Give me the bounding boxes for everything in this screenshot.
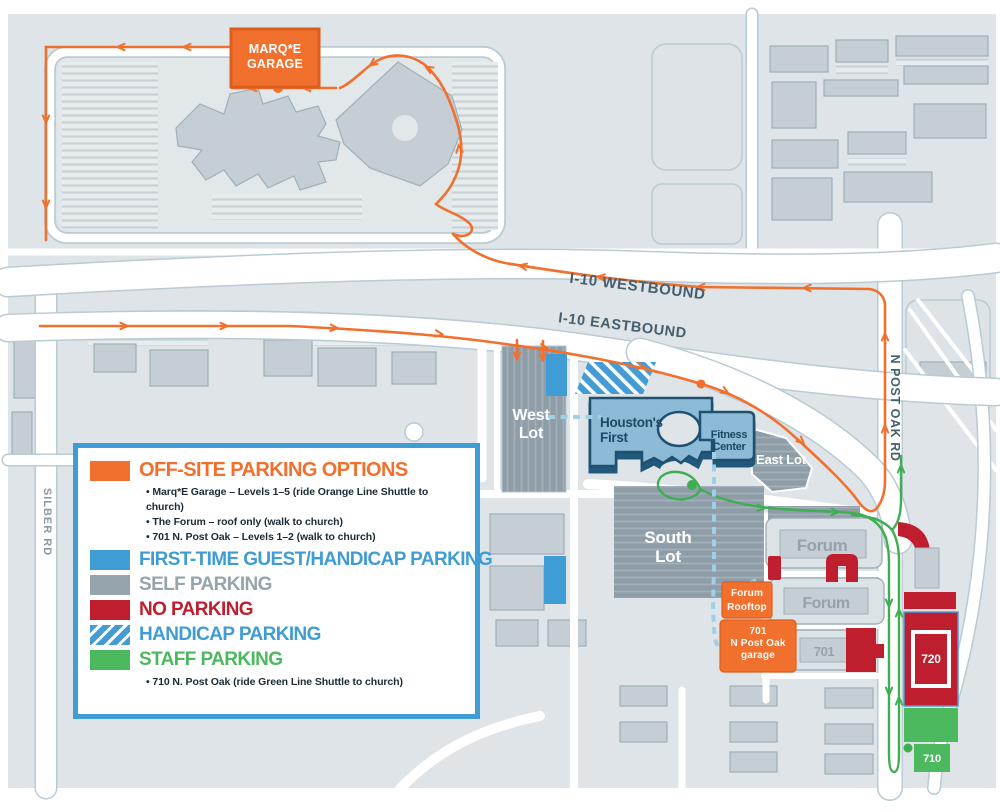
building [94, 344, 136, 372]
staff-parking-swatch [90, 650, 130, 670]
parking-rows [848, 158, 906, 166]
west-lot-label: Lot [519, 425, 544, 442]
building [836, 40, 888, 62]
building [264, 340, 312, 376]
fitness-center-label: Fitness [711, 429, 748, 441]
parking-rows [212, 194, 362, 220]
parking-map: MARQ*E GARAGE Forum Rooftop 701 N Post O… [0, 0, 1000, 812]
post-oak-rd-label: N POST OAK RD [888, 354, 902, 461]
parking-rows [896, 58, 988, 66]
forum-lower-label: Forum [802, 595, 850, 612]
building-701-label: 701 [814, 644, 834, 659]
legend-row-offsite: OFF-SITE PARKING OPTIONS [90, 459, 465, 482]
first-time-swatch [90, 550, 130, 570]
offsite-swatch [90, 461, 130, 481]
staff-parking-label: STAFF PARKING [139, 649, 283, 671]
garage-701-label: 701 [749, 626, 767, 637]
legend-row-staff: STAFF PARKING [90, 649, 465, 671]
marqe-garage-label: MARQ*E [249, 42, 302, 56]
city-block [652, 184, 742, 244]
parking-bar [730, 752, 777, 772]
building [824, 80, 898, 96]
staff-bullet: • 710 N. Post Oak (ride Green Line Shutt… [146, 675, 465, 690]
building [490, 514, 564, 554]
self-parking-label: SELF PARKING [139, 574, 272, 596]
building [14, 338, 36, 398]
parking-bar [730, 686, 777, 706]
first-time-label: FIRST-TIME GUEST/HANDICAP PARKING [139, 549, 492, 571]
green-shuttle-stop-dot [687, 480, 697, 490]
building [490, 566, 544, 610]
no-parking-zone [904, 592, 956, 609]
no-parking-label: NO PARKING [139, 599, 253, 621]
legend-row-handicap: HANDICAP PARKING [90, 624, 465, 646]
forum-rooftop-label: Rooftop [727, 602, 767, 613]
parking-rows [62, 62, 158, 230]
building [12, 412, 32, 458]
parking-bar [825, 724, 873, 744]
garage-701-label: N Post Oak [730, 638, 786, 649]
building-710-label: 710 [923, 753, 941, 765]
marqe-garage-label: GARAGE [247, 57, 303, 71]
handicap-label: HANDICAP PARKING [139, 624, 321, 646]
green-shuttle-stop-dot [904, 744, 913, 753]
offsite-bullet: • 701 N. Post Oak – Levels 1–2 (walk to … [146, 530, 465, 545]
building [392, 352, 436, 384]
handicap-swatch [90, 625, 130, 645]
building-720-label: 720 [921, 652, 941, 666]
building [772, 178, 832, 220]
south-lot-label: Lot [655, 547, 681, 566]
parking-bar [825, 688, 873, 708]
first-time-guest-zone-south [544, 556, 566, 604]
parking-rows [836, 64, 888, 74]
south-lot-label: South [644, 528, 691, 547]
building [318, 348, 376, 386]
church-courtyard [658, 412, 700, 446]
first-time-guest-zone [546, 354, 567, 396]
legend-row-first-time: FIRST-TIME GUEST/HANDICAP PARKING [90, 549, 465, 571]
city-block [652, 44, 742, 170]
parking-bar [620, 722, 667, 742]
building [496, 620, 538, 646]
no-parking-zone [768, 556, 781, 580]
parking-bar [825, 754, 873, 774]
offsite-bullet: • Marq*E Garage – Levels 1–5 (ride Orang… [146, 485, 465, 515]
legend: OFF-SITE PARKING OPTIONS • Marq*E Garage… [73, 443, 480, 719]
building [904, 66, 988, 84]
forum-rooftop-label: Forum [731, 588, 763, 599]
legend-row-no-parking: NO PARKING [90, 599, 465, 621]
silber-rd-label: SILBER RD [41, 488, 53, 556]
houstons-first-label: Houston's [600, 415, 663, 430]
building [914, 104, 986, 138]
legend-row-self: SELF PARKING [90, 574, 465, 596]
houstons-first-label: First [600, 430, 629, 445]
mall-courtyard [392, 115, 418, 141]
building [150, 350, 208, 386]
forum-upper-label: Forum [797, 536, 848, 555]
west-lot-label: West [512, 407, 550, 424]
fitness-center-label: Center [712, 441, 746, 453]
building [770, 46, 828, 72]
garage-701-label: garage [741, 650, 775, 661]
building [896, 36, 988, 56]
no-parking-swatch [90, 600, 130, 620]
self-parking-swatch [90, 575, 130, 595]
offsite-bullet: • The Forum – roof only (walk to church) [146, 515, 465, 530]
building [548, 620, 586, 646]
building [848, 132, 906, 154]
east-lot-label: East Lot [756, 452, 807, 467]
staff-parking-zone [904, 708, 958, 742]
building [772, 140, 838, 168]
orange-shuttle-stop-dot [697, 380, 706, 389]
parking-bar [730, 722, 777, 742]
building [844, 172, 932, 202]
offsite-bullets: • Marq*E Garage – Levels 1–5 (ride Orang… [146, 485, 465, 545]
offsite-title: OFF-SITE PARKING OPTIONS [139, 459, 408, 482]
parking-bar [620, 686, 667, 706]
building [915, 548, 939, 588]
building [772, 82, 816, 128]
roundabout [405, 423, 423, 441]
